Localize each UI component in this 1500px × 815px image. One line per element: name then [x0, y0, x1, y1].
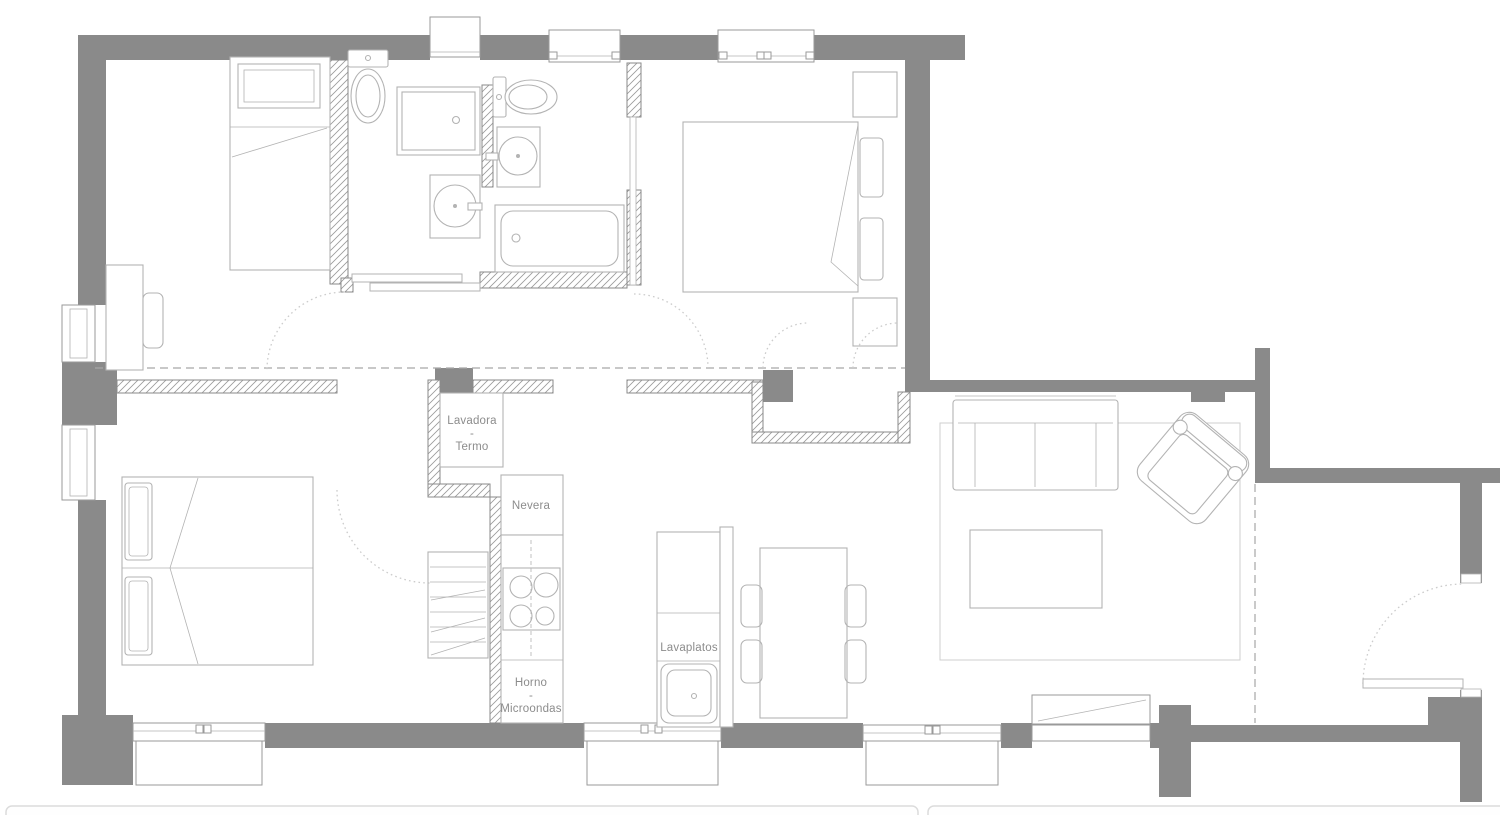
partition-bedroom1-right: [330, 60, 348, 284]
pillow-main-1: [860, 138, 883, 197]
partition-cap: [341, 278, 353, 292]
entry-door-leaf: [1363, 679, 1463, 688]
wardrobe-shelves: [428, 552, 488, 658]
wall-hall-top: [930, 380, 1255, 392]
oven-label-1: Horno: [515, 677, 547, 689]
partition-wardrobe-bottom: [752, 432, 910, 443]
bathroom2: [486, 77, 636, 285]
partition-between-baths: [482, 85, 493, 187]
wall-bottom-b: [721, 723, 863, 748]
partition-bath-bottom: [480, 272, 627, 288]
door-arc-wardrobe-1: [763, 323, 808, 368]
oven-label-3: Microondas: [500, 703, 561, 715]
window-top-small: [430, 17, 480, 57]
single-bed: [230, 57, 330, 270]
window-left-2: [62, 425, 95, 500]
wall-entry-right-lower: [1460, 690, 1482, 802]
double-bed-2: [122, 477, 313, 665]
door-frame-cap-bottom: [1461, 689, 1481, 697]
window-top-1: [549, 30, 620, 62]
window-left-1: [62, 305, 95, 362]
floor-plan-drawing: Lavadora - Termo Nevera Horno - Microond…: [0, 0, 1500, 815]
peninsula-counter: [657, 527, 733, 727]
wall-bottom-right: [1191, 725, 1460, 742]
partition-kitchen-left: [490, 497, 501, 723]
window-bottom-2: [584, 723, 721, 785]
wall-bedroom2-right: [905, 60, 930, 392]
desk: [106, 265, 143, 370]
pillow-main-2: [860, 218, 883, 280]
divider-left: [6, 806, 918, 815]
wall-bottom-c: [1001, 723, 1032, 748]
partition-bedroom2-bottom: [627, 380, 763, 393]
wall-left-lower: [78, 500, 106, 725]
wall-bottom-pier: [1159, 705, 1191, 797]
glass-screen: [630, 117, 636, 285]
armchair: [1132, 407, 1253, 528]
wall-top-c: [620, 35, 718, 60]
toilet-1: [348, 50, 388, 123]
wall-entry-vertical: [1255, 348, 1270, 483]
door-arc-bedroom1: [267, 292, 345, 370]
toilet-2: [493, 77, 557, 117]
bathtub: [495, 205, 624, 272]
fridge-label: Nevera: [512, 500, 551, 512]
bedroom1: [106, 57, 330, 370]
window-bottom-3: [863, 725, 1001, 785]
nightstand-bottom: [853, 298, 897, 346]
partition-bedroom2-left-top: [627, 63, 641, 117]
divider-right: [928, 806, 1500, 815]
door-frame-cap-top: [1461, 574, 1481, 583]
washer-label-1: Lavadora: [447, 415, 497, 427]
door-arc-entry: [1363, 584, 1463, 684]
door-arc-bedroom3: [337, 490, 430, 583]
partition-closet-left: [428, 380, 440, 484]
wall-left-upper: [78, 35, 106, 305]
partition-closet-top: [473, 380, 553, 393]
window-bottom-casement: [1032, 695, 1150, 741]
wall-hall-stub: [1191, 392, 1225, 402]
window-top-2: [718, 30, 814, 62]
washer-label-2: -: [470, 428, 474, 440]
wall-corner-bottom-left: [62, 715, 133, 785]
wall-block-wardrobe: [763, 370, 793, 402]
washer-label-3: Termo: [456, 441, 489, 453]
oven-label-2: -: [529, 690, 533, 702]
wall-entry-door-stub: [1460, 483, 1482, 583]
double-bed-main: [683, 122, 858, 292]
dishwasher-label: Lavaplatos: [660, 642, 718, 654]
wall-bottom-a: [265, 723, 584, 748]
bathroom-sliding-door: [352, 274, 480, 291]
wall-entry-step: [1428, 697, 1460, 725]
coffee-table: [970, 530, 1102, 608]
washbasin-1: [430, 175, 482, 238]
wall-top-d: [814, 35, 965, 60]
shower-tray: [397, 87, 480, 155]
partition-bedroom3-top: [117, 380, 337, 393]
bedroom3: [122, 477, 488, 665]
bathroom1: [348, 50, 482, 238]
living-room: [940, 396, 1254, 660]
desk-chair: [143, 293, 163, 348]
floor-plan: Lavadora - Termo Nevera Horno - Microond…: [0, 0, 1500, 815]
wall-left-block: [62, 362, 117, 425]
door-arc-bedroom2: [634, 294, 708, 368]
nightstand-top: [853, 72, 897, 117]
bedroom2: [683, 72, 897, 346]
page-bottom-divider: [6, 806, 1500, 815]
wall-top-b: [480, 35, 549, 60]
wall-entry-top: [1270, 468, 1500, 483]
partition-wardrobe-right: [898, 392, 910, 443]
washbasin-2: [486, 127, 540, 187]
partition-bedroom3-corner: [428, 484, 490, 497]
window-bottom-1: [133, 723, 265, 785]
dining-table: [760, 548, 847, 718]
sofa: [953, 396, 1118, 490]
